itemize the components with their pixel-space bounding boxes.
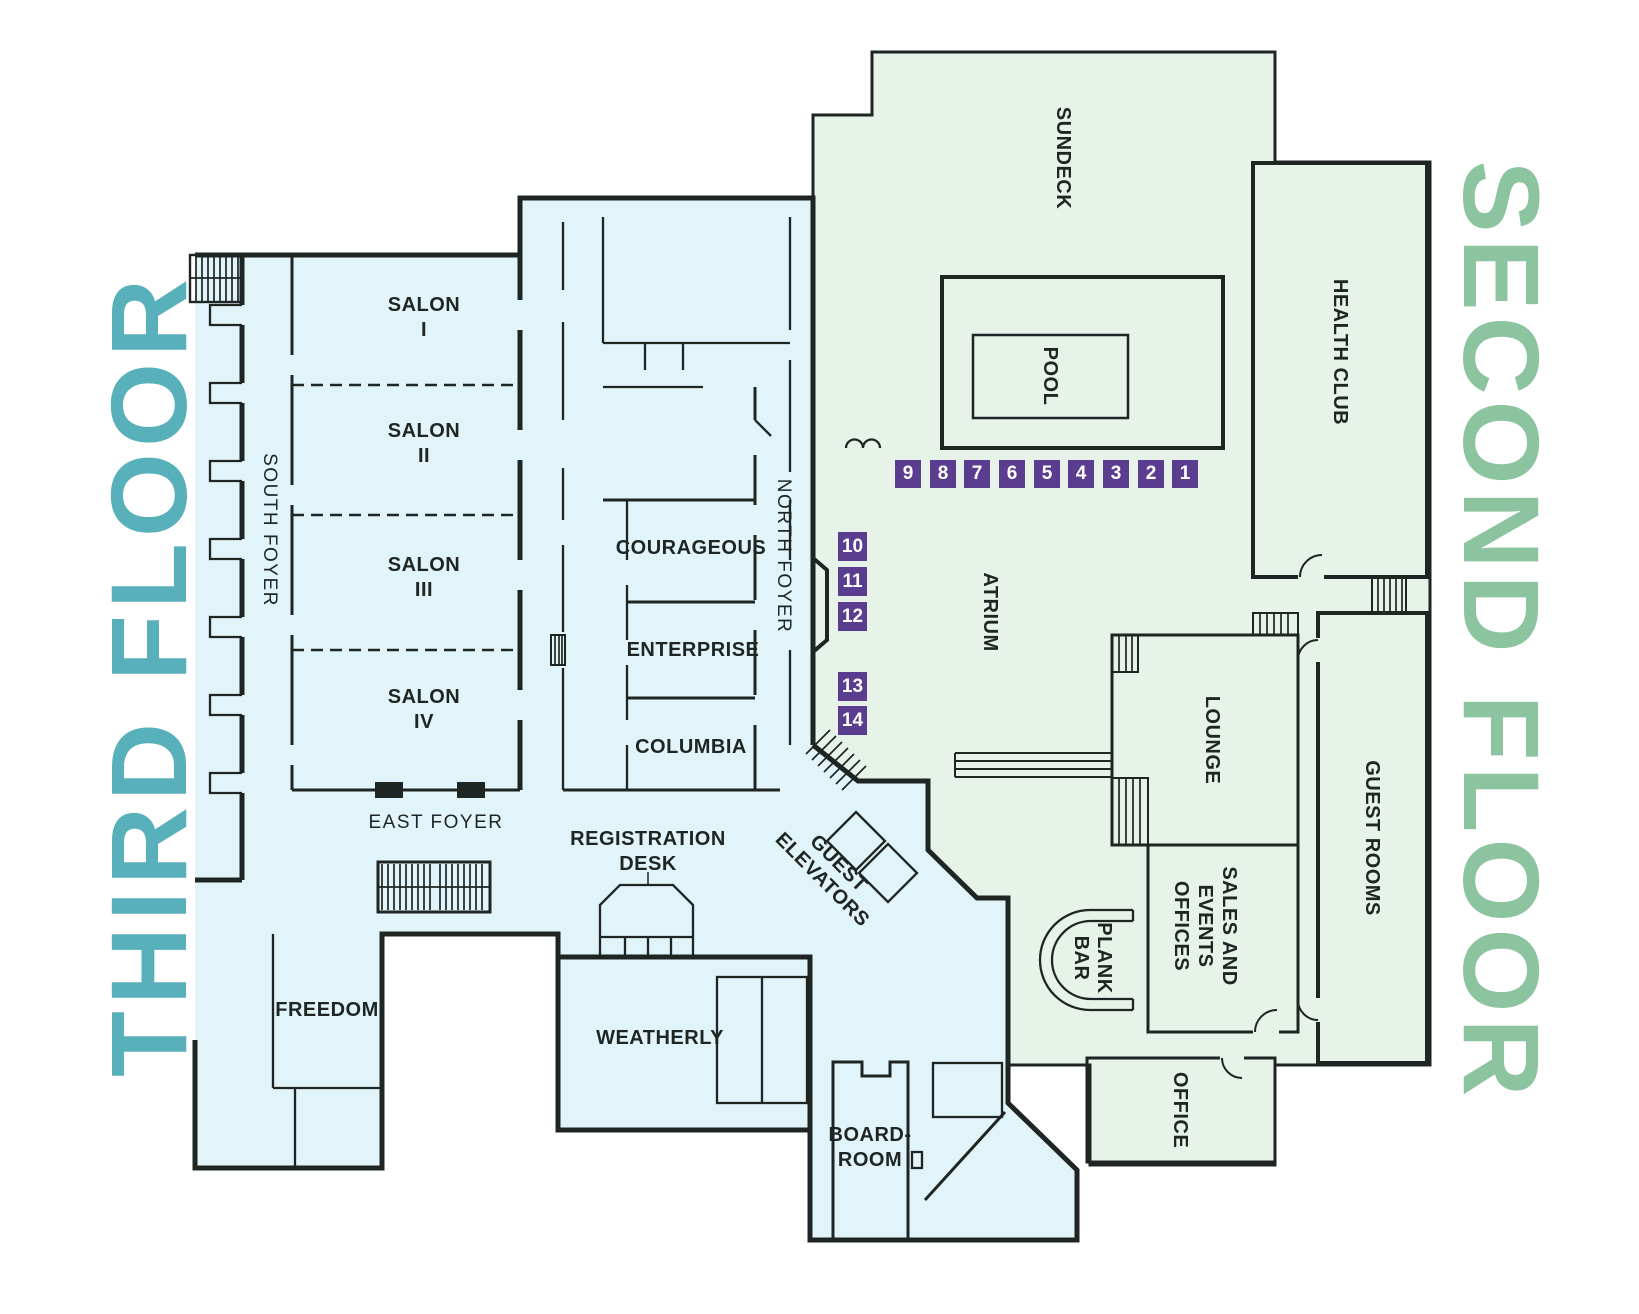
room-label-salon-1: SALONI (344, 292, 504, 344)
room-label-plank-bar: PLANKBAR (1069, 908, 1115, 1008)
room-label-salon-4: SALONIV (344, 684, 504, 736)
room-label-courageous: COURAGEOUS (601, 534, 781, 562)
room-label-columbia: COLUMBIA (606, 733, 776, 761)
badge-1: 1 (1172, 460, 1198, 488)
room-label-sales-offices: SALES ANDEVENTSOFFICES (1169, 851, 1241, 1001)
room-label-registration-desk: REGISTRATIONDESK (558, 826, 738, 878)
badge-4: 4 (1068, 460, 1094, 488)
floor-plan-page: THIRD FLOOR SECOND FLOOR SALONI SALONII … (0, 0, 1639, 1314)
room-label-enterprise: ENTERPRISE (603, 636, 783, 664)
badge-5: 5 (1034, 460, 1060, 488)
badge-2: 2 (1138, 460, 1164, 488)
room-label-atrium: ATRIUM (975, 532, 1005, 692)
floor-plan-drawing (0, 0, 1639, 1314)
badge-10: 10 (838, 532, 867, 561)
badge-9: 9 (895, 460, 921, 488)
room-label-health-club: HEALTH CLUB (1325, 232, 1355, 472)
third-floor-title: THIRD FLOOR (93, 245, 203, 1105)
badge-12: 12 (838, 602, 867, 631)
courtyard-cutout (384, 936, 556, 1208)
room-label-pool: POOL (1035, 316, 1065, 436)
room-label-salon-2: SALONII (344, 418, 504, 470)
room-label-south-foyer: SOUTH FOYER (255, 410, 285, 650)
second-floor-title: SECOND FLOOR (1444, 189, 1559, 1074)
room-label-salon-3: SALONIII (344, 552, 504, 604)
room-label-office: OFFICE (1165, 1040, 1195, 1180)
badge-6: 6 (999, 460, 1025, 488)
badge-3: 3 (1103, 460, 1129, 488)
room-label-freedom: FREEDOM (247, 996, 407, 1024)
badge-14: 14 (838, 706, 867, 735)
room-label-weatherly: WEATHERLY (570, 1024, 750, 1052)
room-label-lounge: LOUNGE (1197, 660, 1227, 820)
room-label-east-foyer: EAST FOYER (336, 808, 536, 836)
badge-8: 8 (930, 460, 956, 488)
badge-7: 7 (964, 460, 990, 488)
room-label-guest-rooms: GUEST ROOMS (1357, 728, 1387, 948)
room-label-sundeck: SUNDECK (1048, 58, 1078, 258)
badge-13: 13 (838, 672, 867, 701)
room-label-boardroom: BOARD-ROOM (790, 1122, 950, 1174)
badge-11: 11 (838, 567, 867, 596)
